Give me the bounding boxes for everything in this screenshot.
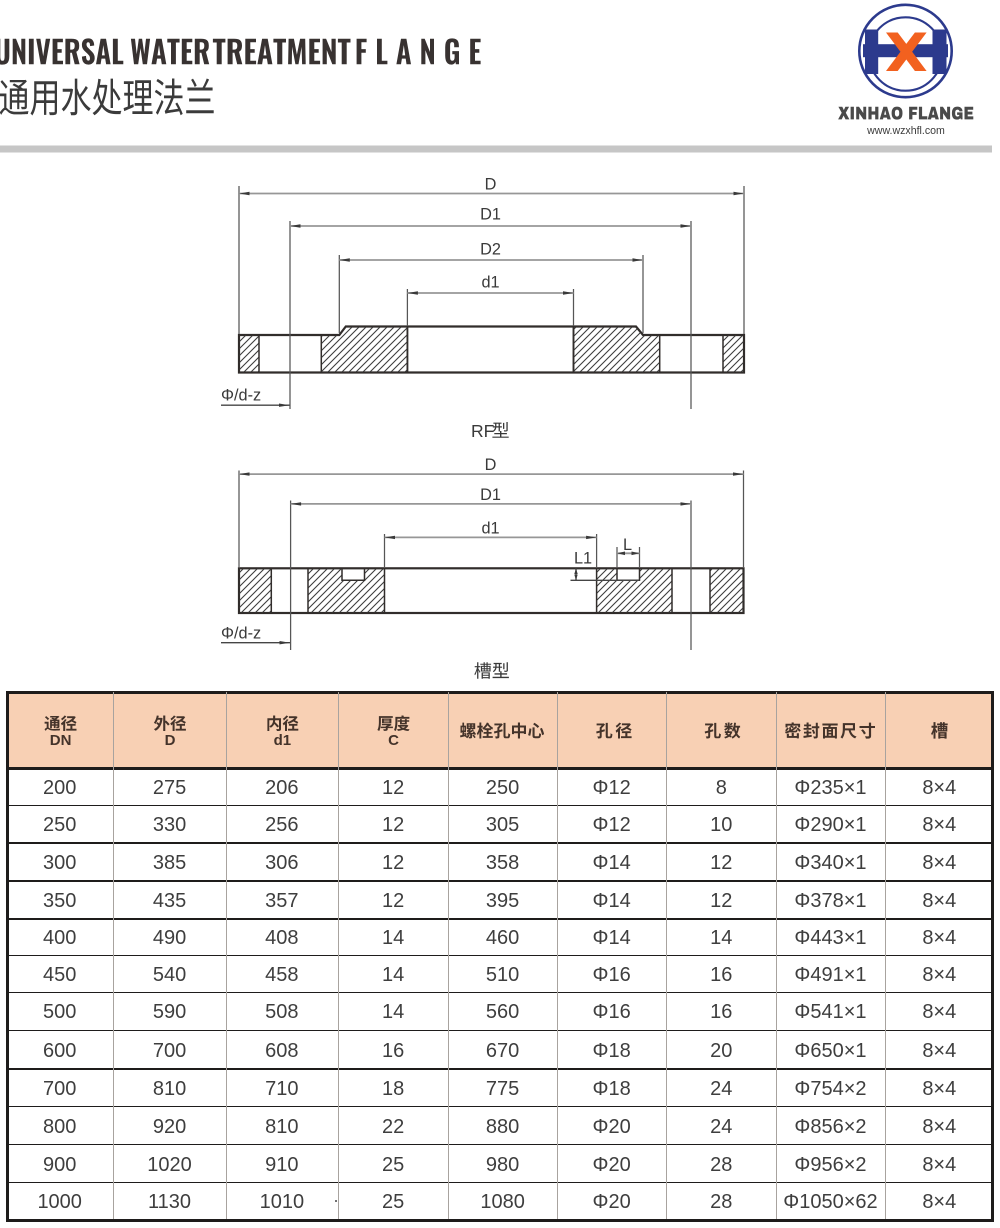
svg-text:www.wzxhfl.com: www.wzxhfl.com [866, 125, 945, 137]
svg-text:d1: d1 [481, 520, 499, 538]
svg-text:Φ/d-z: Φ/d-z [221, 625, 261, 643]
svg-text:L1: L1 [574, 550, 592, 568]
svg-text:Φ/d-z: Φ/d-z [221, 387, 261, 405]
svg-text:D1: D1 [480, 486, 501, 504]
svg-text:L: L [623, 536, 632, 554]
svg-text:RF: RF [471, 421, 494, 441]
svg-text:D: D [485, 176, 497, 194]
svg-text:D2: D2 [480, 241, 501, 259]
svg-text:d1: d1 [481, 274, 499, 292]
svg-text:D: D [485, 456, 497, 474]
svg-text:D1: D1 [480, 206, 501, 224]
